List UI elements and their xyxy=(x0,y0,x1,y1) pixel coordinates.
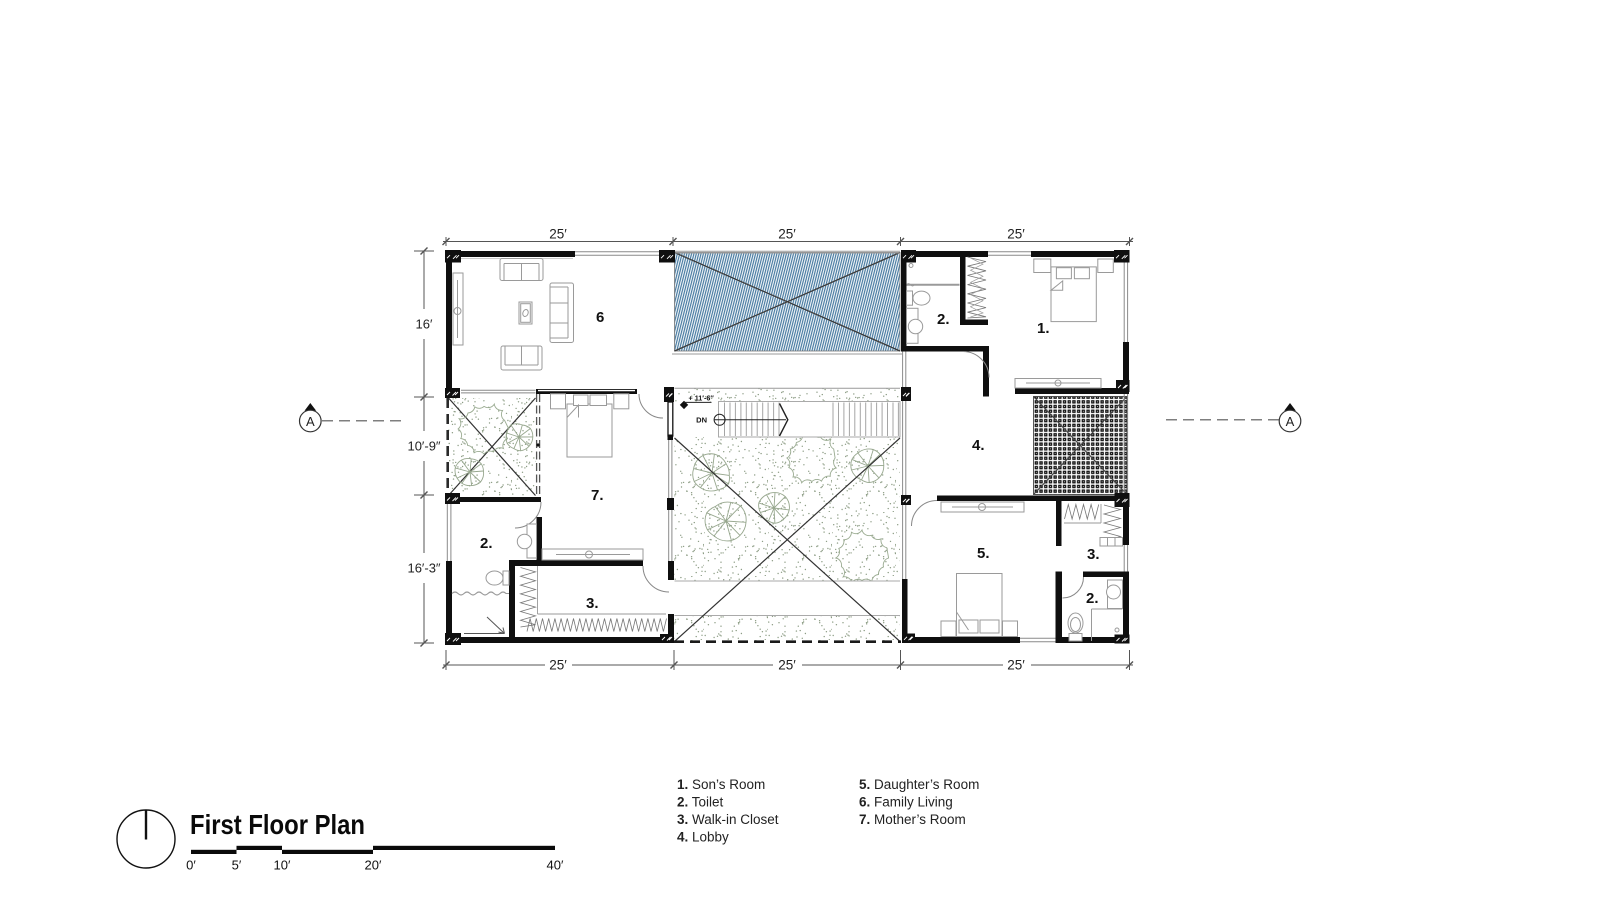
svg-text:20′: 20′ xyxy=(365,858,382,873)
svg-text:25′: 25′ xyxy=(549,227,567,242)
svg-text:+ 11′-6″: + 11′-6″ xyxy=(689,393,715,402)
svg-text:4. Lobby: 4. Lobby xyxy=(677,830,729,845)
svg-text:A: A xyxy=(306,414,315,429)
svg-text:3.: 3. xyxy=(586,595,599,612)
svg-text:1.: 1. xyxy=(1037,320,1050,337)
svg-text:2.: 2. xyxy=(937,311,950,328)
svg-text:7.: 7. xyxy=(591,487,604,504)
svg-text:4.: 4. xyxy=(972,437,985,454)
svg-text:25′: 25′ xyxy=(1007,658,1025,673)
svg-text:2. Toilet: 2. Toilet xyxy=(677,795,724,810)
svg-text:25′: 25′ xyxy=(778,227,796,242)
svg-text:5′: 5′ xyxy=(232,858,242,873)
svg-text:5. Daughter’s Room: 5. Daughter’s Room xyxy=(859,777,979,792)
svg-text:6. Family Living: 6. Family Living xyxy=(859,795,953,810)
svg-text:DN: DN xyxy=(696,416,707,425)
svg-text:2.: 2. xyxy=(1086,590,1099,607)
svg-text:16′-3″: 16′-3″ xyxy=(407,561,440,576)
svg-text:25′: 25′ xyxy=(778,658,796,673)
svg-text:0′: 0′ xyxy=(186,858,196,873)
svg-text:25′: 25′ xyxy=(549,658,567,673)
svg-text:3.: 3. xyxy=(1087,546,1100,563)
svg-text:10′: 10′ xyxy=(274,858,291,873)
svg-text:6: 6 xyxy=(596,309,604,326)
svg-text:A: A xyxy=(1286,414,1295,429)
svg-text:5.: 5. xyxy=(977,545,990,562)
svg-text:40′: 40′ xyxy=(547,858,564,873)
svg-text:3. Walk-in Closet: 3. Walk-in Closet xyxy=(677,812,779,827)
svg-text:10′-9″: 10′-9″ xyxy=(407,439,440,454)
svg-text:16′: 16′ xyxy=(416,317,433,332)
svg-text:7. Mother’s Room: 7. Mother’s Room xyxy=(859,812,966,827)
svg-text:First Floor Plan: First Floor Plan xyxy=(190,809,365,840)
svg-text:1. Son’s Room: 1. Son’s Room xyxy=(677,777,765,792)
svg-text:2.: 2. xyxy=(480,535,493,552)
svg-text:25′: 25′ xyxy=(1007,227,1025,242)
